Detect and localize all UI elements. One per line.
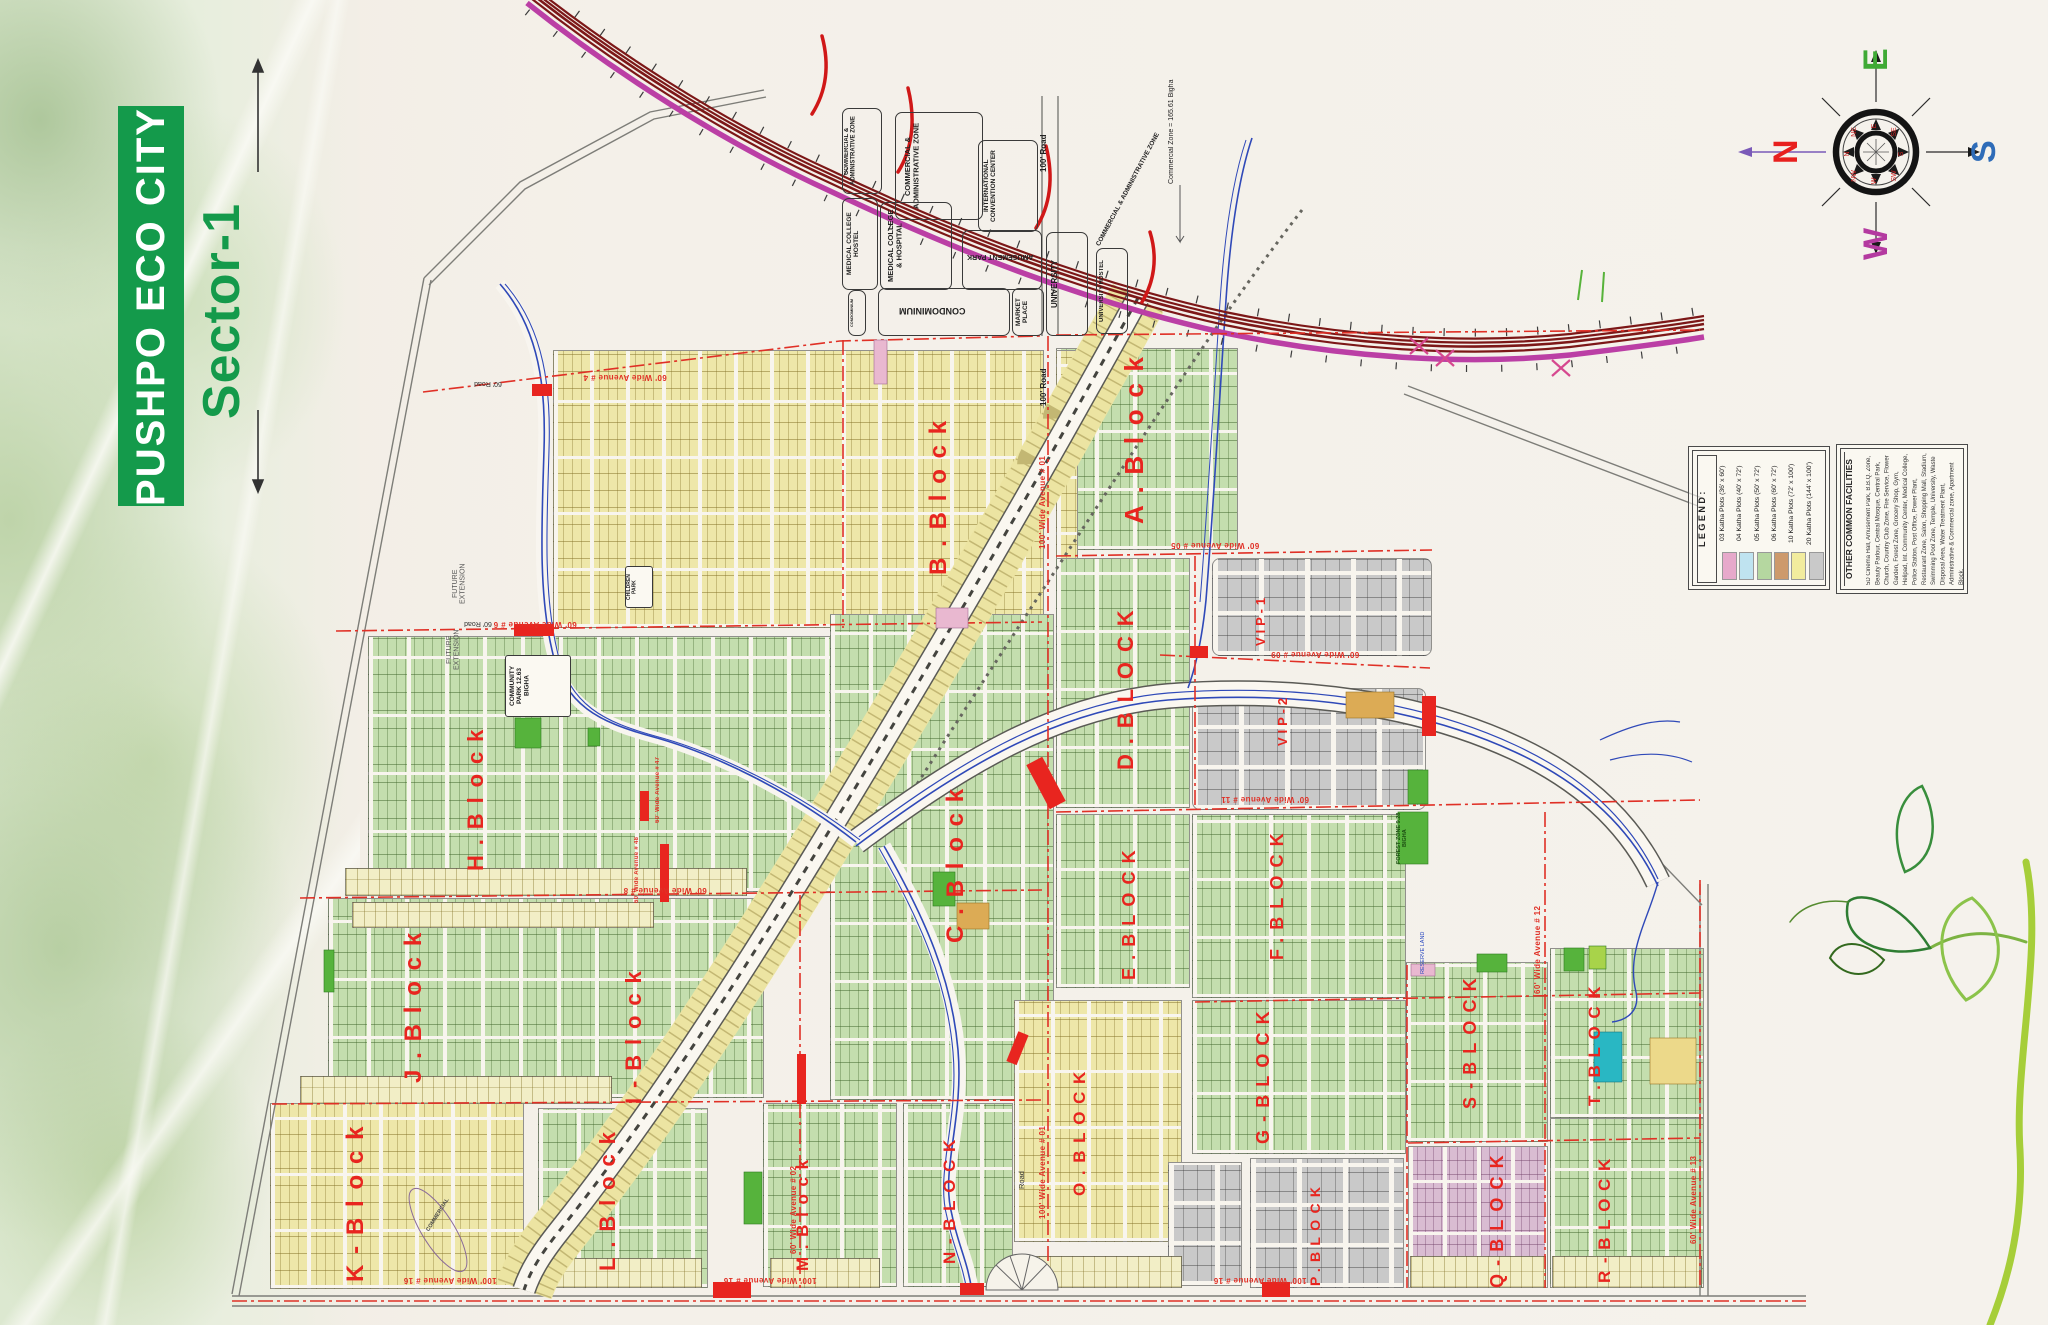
zone-label: AMUSEMENT PARK: [967, 253, 1033, 260]
avenue-11-label: 60' Wide Avenue # 11: [1200, 795, 1330, 804]
legend-item: 06 Katha Plots (60' x 72'): [1771, 453, 1786, 583]
legend-item-label: 06 Katha Plots (60' x 72'): [1771, 455, 1786, 551]
zone-university-hostel: UNIVERSITY HOSTEL: [1096, 248, 1128, 334]
legend-swatch-05katha: [1757, 552, 1772, 580]
zone-label: COMMERCIAL & ADMINISTRATIVE ZONE: [844, 110, 880, 192]
future-extension-label-1: FUTURE EXTENSION: [452, 556, 478, 612]
road-60-label-1: 60' Road: [462, 380, 514, 387]
avenue-strip: [1410, 1256, 1546, 1288]
compass-south-label: S: [1966, 132, 2002, 172]
legend-swatch-06katha: [1774, 552, 1789, 580]
avenue-12-label: 60' Wide Avenue # 12: [1534, 890, 1548, 1010]
legend-swatch-10katha: [1791, 552, 1806, 580]
title-banner: PUSHPO ECO CITY: [118, 106, 184, 506]
avenue-13-label: 60' Wide Avenue # 13: [1690, 1140, 1704, 1260]
block-i-label: I-Block: [622, 932, 650, 1134]
facilities-title: OTHER COMMON FACILITIES: [1844, 452, 1862, 586]
avenue-01-label-2: 100' Wide Avenue # 01: [1039, 1110, 1053, 1234]
avenue-47-label: 60' Wide Avenue # 47: [655, 745, 667, 835]
block-k-plots: [270, 1103, 524, 1289]
block-t-label: T.BLOCK: [1586, 980, 1612, 1106]
legend-item-label: 20 Katha Plots (144' x 100'): [1806, 455, 1821, 551]
avenue-06-label: 60' Wide Avenue # 6: [470, 620, 600, 629]
compass-inner-n: N: [1844, 151, 1851, 156]
block-f-label: F.BLOCK: [1268, 838, 1296, 960]
road-label: Road: [1018, 1158, 1032, 1202]
zone-label: MEDICAL COLLEGE HOSTEL: [846, 202, 874, 286]
avenue-08-label: 60' Wide Avenue # 8: [600, 886, 730, 895]
commercial-zone-note: Commercial Zone = 165.61 Bigha: [1168, 92, 1188, 184]
block-p-label: P.BLOCK: [1308, 1198, 1334, 1286]
zone-label: CONDOMINIUM: [850, 292, 864, 334]
highway-green-ticks: [1578, 270, 1604, 302]
legend-item-label: 05 Katha Plots (50' x 72'): [1754, 455, 1769, 551]
block-b-label: B.Block: [926, 388, 956, 598]
block-t-plots: [1550, 948, 1704, 1118]
compass-inner-e: E: [1871, 123, 1878, 128]
compass-inner-s: S: [1898, 151, 1905, 156]
block-q-label: Q-BLOCK: [1488, 1158, 1514, 1288]
vip1-label: VIP-1: [1254, 588, 1278, 652]
highway-crossing-marks: [1410, 338, 1570, 376]
block-o-label: O.BLOCK: [1071, 1068, 1097, 1196]
avenue-16-label-1: 100' Wide Avenue # 16: [380, 1276, 520, 1285]
block-h-plots: [368, 636, 832, 892]
block-f-plots: [1192, 814, 1406, 998]
avenue-strip: [300, 1076, 612, 1104]
sector-wrap: Sector-1: [192, 146, 254, 476]
zone-label: CONDOMINIUM: [899, 306, 966, 316]
zone-label: INTERNATIONAL CONVENTION CENTER: [983, 145, 1033, 227]
legend-panel: L E G E N D : 03 Katha Plots (36' x 60')…: [1688, 446, 1830, 590]
avenue-16-label-2: 100' Wide Avenue # 16: [700, 1276, 840, 1285]
poster-canvas: E SE S SW W NW N NE COMMERCIAL & ADMINIS…: [0, 0, 2048, 1325]
zone-medical-college-hostel: MEDICAL COLLEGE HOSTEL: [842, 198, 878, 290]
avenue-strip: [1552, 1256, 1702, 1288]
avenue-01-label-1: 100' Wide Avenue # 01: [1039, 440, 1053, 564]
block-s-label: S-BLOCK: [1461, 983, 1487, 1109]
block-g-label: G-BLOCK: [1254, 1008, 1282, 1144]
legend-swatch-04katha: [1739, 552, 1754, 580]
legend-item-label: 10 Katha Plots (72' x 100'): [1788, 455, 1803, 551]
zone-label: MEDICAL COLLEGE & HOSPITAL: [887, 209, 945, 283]
facilities-text: 5D Cinema Hall, Amusement Park, B.B.Q. Z…: [1865, 453, 1961, 585]
zone-amusement-park: AMUSEMENT PARK: [962, 230, 1042, 290]
legend-item: 04 Katha Plots (40' x 72'): [1736, 453, 1751, 583]
avenue-05-label: 60' Wide Avenue # 05: [1150, 541, 1280, 550]
road-100-label-top: 100' Road: [1040, 118, 1056, 188]
future-extension-label-2: FUTURE EXTENSION: [446, 622, 472, 678]
zone-label: UNIVERSITY HOSTEL: [1099, 251, 1125, 331]
legend-item-label: 04 Katha Plots (40' x 72'): [1736, 455, 1751, 551]
legend-item: 20 Katha Plots (144' x 100'): [1806, 453, 1821, 583]
compass-west-label: W: [1858, 222, 1894, 266]
legend-item: 10 Katha Plots (72' x 100'): [1788, 453, 1803, 583]
page-title: PUSHPO ECO CITY: [129, 107, 173, 506]
block-j-plots: [328, 898, 764, 1098]
block-d-label: D.BLOCK: [1114, 592, 1144, 778]
children-park: CHILDREN PARK: [625, 566, 653, 608]
compass-inner-sw: SW: [1891, 170, 1898, 182]
vine-decoration: [1790, 786, 2032, 1325]
children-park-label: CHILDREN PARK: [627, 568, 651, 606]
sector-title: Sector-1: [194, 203, 251, 419]
forest-zone-label: FOREST ZONE 9.28 BIGHA: [1396, 812, 1428, 864]
block-n-label: N-BLOCK: [941, 1116, 967, 1280]
compass-north-label: N: [1768, 132, 1804, 172]
zone-university: UNIVERSITY: [1046, 232, 1088, 336]
zone-label: COMMERCIAL & ADMINISTRATIVE ZONE: [1092, 126, 1164, 253]
zone-intl-convention-center: INTERNATIONAL CONVENTION CENTER: [978, 140, 1038, 232]
block-r-label: R-BLOCK: [1596, 1150, 1622, 1284]
compass-inner-nw: NW: [1851, 170, 1858, 182]
compass-inner-w: W: [1871, 177, 1878, 184]
block-k-label: K-Block: [343, 1113, 373, 1285]
community-park: COMMUNITY PARK 12.63 BIGHA: [505, 655, 571, 717]
community-park-label: COMMUNITY PARK 12.63 BIGHA: [509, 659, 567, 713]
zone-commercial-admin-1: COMMERCIAL & ADMINISTRATIVE ZONE: [842, 108, 882, 194]
zone-label: UNIVERSITY: [1051, 237, 1083, 331]
avenue-04-label: 60' Wide Avenue # 4: [560, 373, 690, 382]
legend-item: 05 Katha Plots (50' x 72'): [1754, 453, 1769, 583]
legend-swatch-03katha: [1722, 552, 1737, 580]
compass-east-label: E: [1858, 38, 1894, 82]
zone-market-place: MARKET PLACE: [1012, 288, 1044, 336]
compass-inner-ne: NE: [1851, 127, 1858, 137]
block-h-label: H.Block: [464, 716, 494, 874]
block-e-label: E.BLOCK: [1120, 848, 1148, 980]
road-100-label: 100' Road: [1040, 352, 1056, 422]
zone-label: MARKET PLACE: [1015, 291, 1041, 333]
legend-swatch-20katha: [1809, 552, 1824, 580]
reserve-land-label: RESERVE LAND: [1420, 928, 1434, 978]
block-a-label: A.Block: [1120, 372, 1150, 524]
legend-item-label: 03 Katha Plots (36' x 60'): [1719, 455, 1734, 551]
block-l-label: L.Block: [596, 1118, 624, 1276]
avenue-strip: [1016, 1256, 1182, 1288]
facilities-panel: OTHER COMMON FACILITIES 5D Cinema Hall, …: [1836, 444, 1968, 594]
block-j-label: J.Block: [401, 903, 431, 1103]
zone-label: COMMERCIAL & ADMINISTRATIVE ZONE: [904, 121, 974, 211]
block-m-label: M.Block: [794, 1148, 820, 1276]
block-g-plots: [1192, 1000, 1406, 1154]
zone-condominium: CONDOMINIUM: [878, 288, 1010, 336]
avenue-48-label: 60' Wide Avenue # 48: [634, 825, 646, 915]
legend-items: 03 Katha Plots (36' x 60') 04 Katha Plot…: [1719, 453, 1821, 583]
legend-title: L E G E N D :: [1697, 455, 1717, 583]
compass-inner-se: SE: [1891, 127, 1898, 137]
vip1-plots: [1212, 558, 1432, 656]
avenue-strip: [352, 902, 654, 928]
vip2-label: VIP-2: [1276, 692, 1300, 748]
legend-item: 03 Katha Plots (36' x 60'): [1719, 453, 1734, 583]
zone-medical-college-hospital: MEDICAL COLLEGE & HOSPITAL: [880, 202, 952, 290]
block-c-label: C.Block: [943, 765, 973, 957]
zone-condominium-small: CONDOMINIUM: [848, 290, 866, 336]
vip2-plots: [1192, 688, 1426, 810]
